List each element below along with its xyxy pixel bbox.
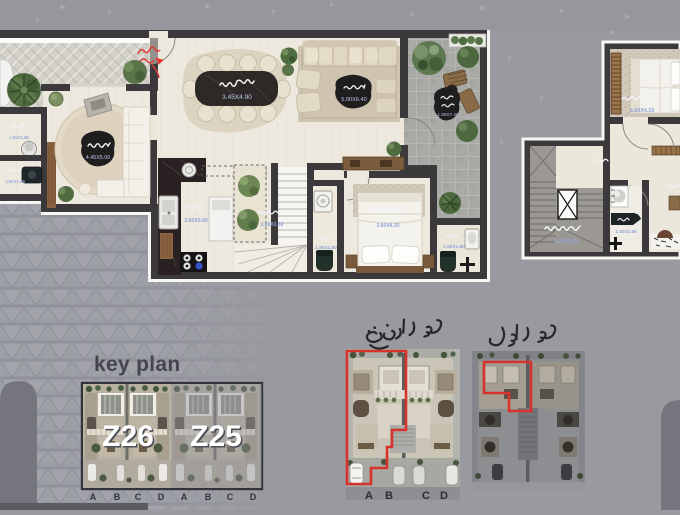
svg-text:key plan: key plan xyxy=(94,353,180,376)
svg-text:D: D xyxy=(440,490,448,502)
svg-text:1.50X1.95: 1.50X1.95 xyxy=(616,229,637,234)
svg-text:C: C xyxy=(227,492,234,502)
svg-text:D: D xyxy=(158,492,165,502)
svg-text:3.60X3.80: 3.60X3.80 xyxy=(184,218,208,224)
svg-text:Z26: Z26 xyxy=(102,420,154,453)
svg-text:A: A xyxy=(181,492,188,502)
svg-text:3.60X4.30: 3.60X4.30 xyxy=(377,223,400,229)
svg-text:1.50X1.80: 1.50X1.80 xyxy=(443,244,465,250)
svg-text:1.50X7.40: 1.50X7.40 xyxy=(438,112,459,117)
svg-text:D: D xyxy=(250,492,257,502)
svg-text:Z25: Z25 xyxy=(190,420,242,453)
svg-text:1.50X1.80: 1.50X1.80 xyxy=(315,245,337,251)
svg-text:3.60X4.10: 3.60X4.10 xyxy=(630,108,655,114)
svg-text:B: B xyxy=(205,492,212,502)
svg-text:B: B xyxy=(114,492,121,502)
svg-text:1.60X3.30: 1.60X3.30 xyxy=(261,222,284,228)
svg-text:5.00X6.40: 5.00X6.40 xyxy=(341,97,367,103)
svg-text:C: C xyxy=(135,492,142,502)
svg-text:1.90X1.85: 1.90X1.85 xyxy=(5,179,26,184)
svg-text:3.45X4.90: 3.45X4.90 xyxy=(222,94,252,101)
svg-text:A: A xyxy=(90,492,97,502)
svg-text:1.20X3.30: 1.20X3.30 xyxy=(554,239,579,245)
svg-text:A: A xyxy=(365,490,373,502)
svg-text:C: C xyxy=(422,490,430,502)
svg-text:B: B xyxy=(385,490,393,502)
svg-text:4.45X5.00: 4.45X5.00 xyxy=(86,155,111,161)
svg-text:1.85X1.85: 1.85X1.85 xyxy=(9,135,30,140)
